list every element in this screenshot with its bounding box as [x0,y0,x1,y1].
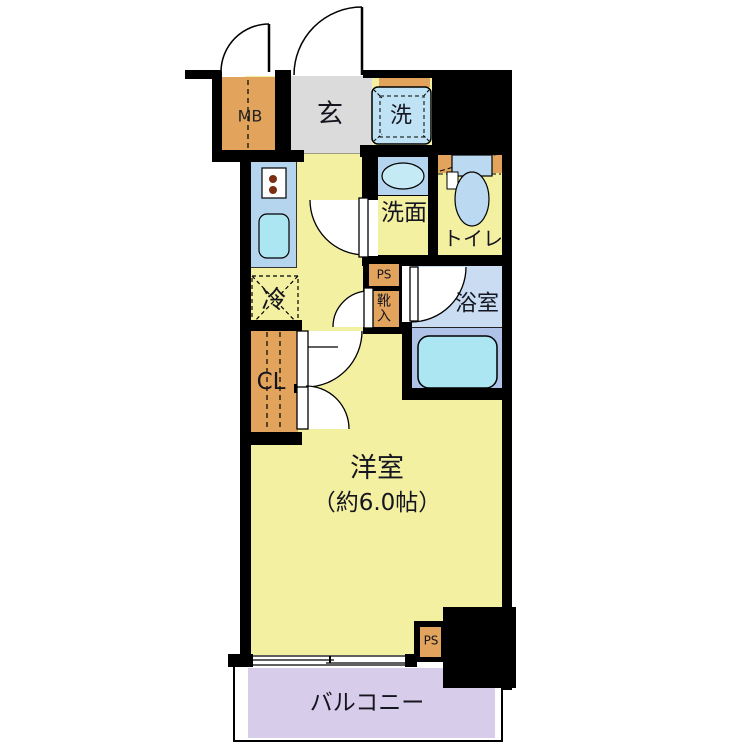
label-entrance: 玄 [317,101,343,128]
bathroom-lower-fill [412,327,503,389]
floorplan-canvas: MB 玄 洗 洗面 トイレ 冷 PS 靴入 浴室 CL 洋室 （約6.0帖） P… [0,0,750,750]
wall-vanity-toilet [428,145,438,266]
wall-bath-bottom [402,388,512,400]
wall-right [502,70,512,690]
wall-closet-top [240,320,302,331]
wall-door-mid-stub [294,384,302,393]
label-ps-upper: PS [377,269,392,282]
label-balcony: バルコニー [310,691,425,715]
label-closet: CL [257,370,286,394]
label-bathroom: 浴室 [455,292,499,315]
wall-mb-left [212,70,222,162]
doorway-vanity [365,200,378,256]
label-shoe-box: 靴入 [376,294,392,323]
label-washer: 洗 [390,104,412,127]
label-mb: MB [238,109,263,126]
label-western-room-size: （約6.0帖） [313,491,442,515]
label-ps-lower: PS [424,635,439,648]
wall-mb-entrance [275,70,291,160]
void-top-right [432,70,512,155]
void-bottom-right [443,607,516,688]
label-toilet: トイレ [443,229,503,250]
wall-hall-vanity [362,150,378,202]
doorway-bathroom [402,266,412,322]
wall-top-left-stub [185,70,215,79]
label-fridge: 冷 [261,287,286,313]
wall-window-left-cap [228,654,253,667]
wall-mb-bottom [212,150,304,162]
label-western-room: 洋室 [350,455,404,483]
washer-top-shelf [379,78,430,87]
mb-door-arc [221,24,269,72]
entrance-door-arc [294,7,362,75]
label-vanity: 洗面 [381,201,427,225]
wall-left [240,150,251,662]
kitchen-counter [249,160,297,268]
vanity-counter [377,155,429,196]
wall-closet-bottom [240,432,302,445]
toilet-pipe-shelf [438,153,502,173]
